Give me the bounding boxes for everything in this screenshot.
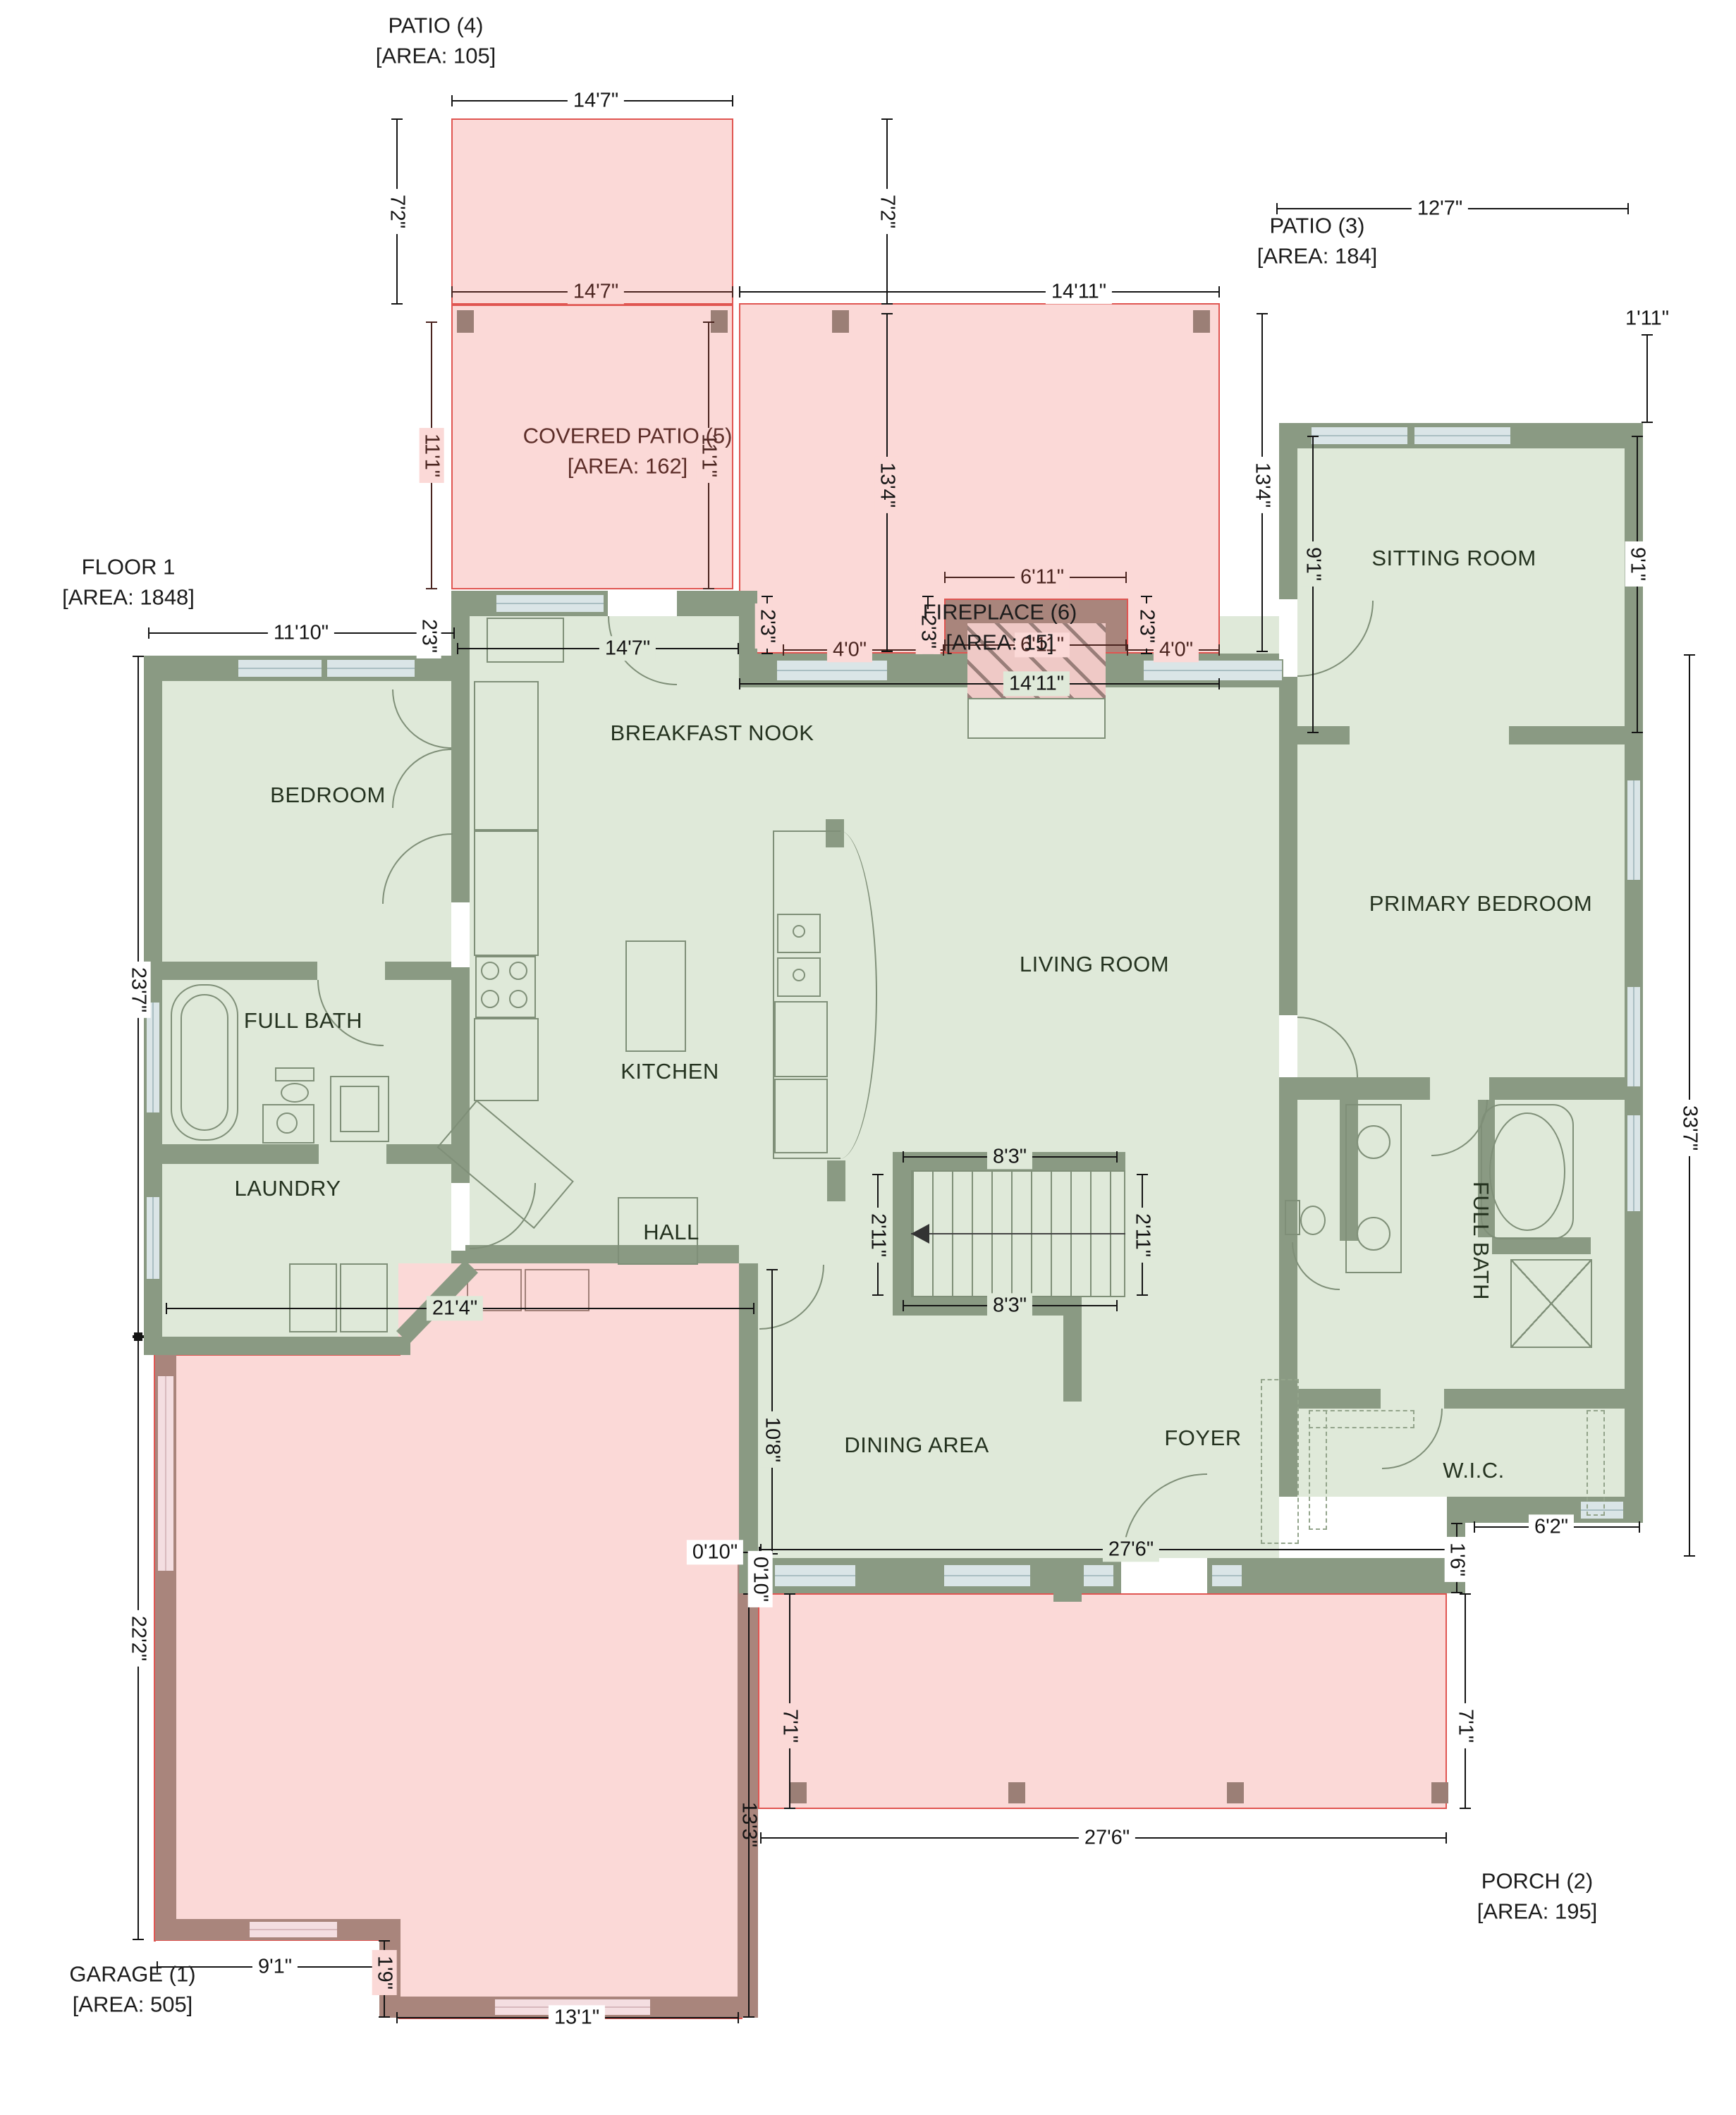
area-value: [AREA: 15]	[923, 627, 1077, 658]
sink-bowl	[1357, 1217, 1390, 1251]
dim-label-8-3-12: 8'3"	[987, 1293, 1032, 1318]
patio-post	[1193, 310, 1210, 333]
area-name: COVERED PATIO (5)	[523, 421, 733, 451]
foyer-closet	[1261, 1379, 1299, 1544]
dim-label-33-7-38: 33'7"	[1677, 1100, 1701, 1156]
dim-label-22-2-34: 22'2"	[126, 1610, 150, 1667]
area-name: PATIO (3)	[1257, 211, 1378, 241]
wall-stairs-left	[893, 1152, 911, 1316]
area-name: PATIO (4)	[376, 11, 496, 41]
washer	[289, 1263, 337, 1332]
wall-bedroom-bath-divider	[162, 962, 317, 980]
dim-line-7-1-40	[789, 1593, 790, 1809]
toilet-bowl	[1300, 1206, 1326, 1235]
room-label-sitting-room-9: SITTING ROOM	[1371, 546, 1536, 571]
dim-label-27-6-15: 27'6"	[1079, 1825, 1135, 1850]
kitchen-counter	[474, 830, 539, 956]
wall-sitting-left	[1279, 423, 1297, 599]
dim-label-4-0-8: 4'0"	[1154, 637, 1199, 662]
wall-sitting-bottom	[1279, 726, 1350, 744]
dim-label-13-4-24: 13'4"	[874, 457, 899, 513]
area-label-patio-3: PATIO (3)[AREA: 184]	[1257, 211, 1378, 272]
wall-primary-left	[1279, 752, 1297, 1015]
area-value: [AREA: 184]	[1257, 241, 1378, 271]
dim-label-7-2-20: 7'2"	[384, 189, 409, 234]
room-label-primary-bedroom-10: PRIMARY BEDROOM	[1369, 891, 1592, 916]
dim-label-4-0-5: 4'0"	[827, 637, 872, 662]
window	[1626, 779, 1642, 881]
room-label-kitchen-4: KITCHEN	[621, 1059, 719, 1084]
toilet	[275, 1067, 314, 1081]
bathtub-inner	[1489, 1112, 1565, 1231]
toilet-bowl	[281, 1083, 309, 1103]
dim-label-21-4-13: 21'4"	[427, 1296, 483, 1320]
porch-post	[1431, 1782, 1448, 1803]
window	[774, 1564, 857, 1588]
window	[326, 658, 416, 678]
burner	[509, 962, 527, 980]
shower-inner	[340, 1086, 379, 1132]
window	[1211, 1564, 1243, 1588]
window	[1413, 426, 1512, 446]
dim-label-13-1-17: 13'1"	[549, 2005, 605, 2030]
window	[1626, 986, 1642, 1088]
dim-label-14-7-0: 14'7"	[568, 88, 624, 113]
dim-label-11-10-10: 11'10"	[268, 620, 334, 645]
dim-label-9-1-27: 9'1"	[1625, 541, 1649, 587]
nook-cabinet	[487, 618, 564, 663]
garage-window	[157, 1375, 175, 1572]
window	[1310, 426, 1409, 446]
wall-bath-wic-divider	[1444, 1389, 1643, 1409]
dim-label-9-1-26: 9'1"	[1300, 541, 1325, 587]
bathtub-inner	[181, 994, 228, 1131]
porch-post	[1008, 1782, 1025, 1803]
dim-label-7-2-21: 7'2"	[874, 189, 899, 234]
kitchen-island	[625, 940, 686, 1052]
dim-label-7-1-41: 7'1"	[1453, 1703, 1477, 1748]
dim-label-14-7-1: 14'7"	[568, 279, 624, 304]
porch-post	[1227, 1782, 1244, 1803]
dim-label-11-1-22: 11'1"	[419, 428, 444, 483]
burner	[481, 962, 499, 980]
garage-region-upper	[155, 1355, 399, 1940]
dim-line-1-11-28	[1646, 334, 1648, 423]
cabinet	[774, 1079, 828, 1153]
area-label-fireplace-6: FIREPLACE (6)[AREA: 15]	[923, 597, 1077, 658]
wall-laundry-bottom	[144, 1337, 410, 1355]
wall-right	[1625, 423, 1643, 1523]
window	[145, 1196, 161, 1280]
area-label-floor-1: FLOOR 1[AREA: 1848]	[62, 552, 195, 613]
porch-region	[758, 1593, 1447, 1809]
room-label-full-bath-1: FULL BATH	[244, 1008, 362, 1034]
wall-front	[1207, 1558, 1465, 1593]
fireplace-hearth	[967, 698, 1106, 739]
burner	[481, 990, 499, 1008]
wall-primary-bottom	[1489, 1077, 1643, 1100]
area-name: FLOOR 1	[62, 552, 195, 582]
dim-label-14-7-4: 14'7"	[599, 636, 656, 661]
foyer-post	[1053, 1567, 1082, 1602]
sink-bowl	[1357, 1125, 1390, 1159]
burner	[509, 990, 527, 1008]
dim-line-7-1-41	[1465, 1593, 1466, 1809]
sink-bowl	[276, 1112, 298, 1134]
patio-post	[832, 310, 849, 333]
porch-post	[790, 1782, 807, 1803]
wall-bedroom-right	[451, 681, 470, 902]
dim-label-8-3-11: 8'3"	[987, 1144, 1032, 1169]
dim-label-1-9-42: 1'9"	[372, 1950, 396, 1995]
area-name: PORCH (2)	[1477, 1866, 1598, 1896]
area-value: [AREA: 505]	[69, 1990, 195, 2020]
dim-label-1-11-28: 1'11"	[1620, 306, 1675, 331]
kitchen-counter	[474, 681, 539, 830]
kitchen-counter	[474, 1018, 539, 1101]
dim-label-6-2-18: 6'2"	[1529, 1514, 1574, 1539]
dim-label-6-11-6: 6'11"	[1015, 565, 1070, 589]
garage-window	[248, 1920, 338, 1939]
window	[495, 594, 605, 613]
dim-label-14-11-9: 14'11"	[1003, 671, 1070, 696]
wall-sitting-bottom	[1509, 726, 1625, 744]
dim-label-2-3-29: 2'3"	[416, 613, 441, 658]
patio-4-region	[451, 118, 733, 305]
area-label-garage-1: GARAGE (1)[AREA: 505]	[69, 1959, 195, 2021]
wall-bath-laundry-divider	[162, 1144, 319, 1164]
wall-bedroom-bath-divider	[385, 962, 451, 980]
toilet	[1285, 1200, 1300, 1235]
area-label-patio-4: PATIO (4)[AREA: 105]	[376, 11, 496, 72]
area-label-porch-2: PORCH (2)[AREA: 195]	[1477, 1866, 1598, 1927]
room-label-living-room-5: LIVING ROOM	[1020, 952, 1169, 977]
area-name: FIREPLACE (6)	[923, 597, 1077, 627]
dim-label-14-11-2: 14'11"	[1046, 279, 1112, 304]
floor-center-upper	[470, 616, 1279, 1245]
dishwasher	[774, 1001, 828, 1077]
dim-label-1-6-43: 1'6"	[1444, 1537, 1469, 1582]
dim-label-12-7-3: 12'7"	[1412, 196, 1468, 221]
dim-label-7-1-40: 7'1"	[777, 1703, 802, 1748]
kitchen-post	[827, 1160, 845, 1201]
wall-bath-wic-divider	[1297, 1389, 1381, 1409]
area-value: [AREA: 195]	[1477, 1896, 1598, 1927]
dim-label-0-10-19: 0'10"	[687, 1540, 743, 1564]
room-label-breakfast-nook-3: BREAKFAST NOOK	[611, 721, 814, 746]
dim-label-2-11-35: 2'11"	[865, 1208, 890, 1263]
dim-label-23-7-33: 23'7"	[126, 962, 150, 1018]
dim-label-13-4-25: 13'4"	[1249, 457, 1274, 513]
floor-plan-canvas: BEDROOMFULL BATHLAUNDRYBREAKFAST NOOKKIT…	[0, 0, 1736, 2115]
dim-label-2-3-32: 2'3"	[1134, 603, 1159, 649]
stair-post	[1063, 1316, 1082, 1402]
window	[1082, 1564, 1115, 1588]
dryer	[340, 1263, 388, 1332]
room-label-bedroom-0: BEDROOM	[270, 783, 386, 808]
stair-direction-arrow	[911, 1224, 929, 1244]
shower	[1510, 1259, 1592, 1348]
area-label-covered-patio-5: COVERED PATIO (5)[AREA: 162]	[523, 421, 733, 482]
dim-label-27-6-14: 27'6"	[1103, 1537, 1159, 1562]
garage-region-main	[398, 1263, 741, 2018]
dim-label-2-3-30: 2'3"	[754, 603, 779, 649]
dim-line-14-11-2	[739, 291, 1220, 293]
area-value: [AREA: 162]	[523, 451, 733, 482]
dim-line-14-7-4	[457, 648, 739, 649]
window	[776, 659, 888, 682]
area-name: GARAGE (1)	[69, 1959, 195, 1990]
window	[1626, 1114, 1642, 1213]
window	[1142, 659, 1283, 682]
dim-label-13-3-39: 13'3"	[736, 1796, 761, 1853]
dim-label-0-10-44: 0'10"	[747, 1551, 772, 1607]
dim-label-10-8-37: 10'8"	[759, 1411, 784, 1468]
window	[943, 1564, 1032, 1588]
area-value: [AREA: 105]	[376, 41, 496, 71]
sink-bowl	[793, 969, 805, 981]
dim-label-9-1-16: 9'1"	[252, 1954, 298, 1979]
area-value: [AREA: 1848]	[62, 582, 195, 613]
dim-line-14-11-9	[739, 683, 1220, 685]
patio-post	[457, 310, 474, 333]
room-label-w-i-c-12: W.I.C.	[1443, 1458, 1504, 1483]
room-label-foyer-8: FOYER	[1164, 1426, 1241, 1451]
room-label-dining-area-7: DINING AREA	[844, 1433, 989, 1458]
window	[237, 658, 323, 678]
stair-direction-line	[911, 1233, 1125, 1234]
sink-bowl	[793, 925, 805, 938]
wall-tub-bottom	[1492, 1237, 1591, 1254]
room-label-hall-6: HALL	[643, 1220, 699, 1245]
wic-shelf	[1309, 1410, 1327, 1530]
dim-label-2-11-36: 2'11"	[1130, 1208, 1154, 1263]
room-label-full-bath-11: FULL BATH	[1468, 1182, 1493, 1300]
garage-storage	[525, 1269, 589, 1311]
wic-shelf	[1587, 1410, 1605, 1516]
wall-primary-bottom	[1279, 1077, 1430, 1100]
room-label-laundry-2: LAUNDRY	[234, 1176, 341, 1201]
